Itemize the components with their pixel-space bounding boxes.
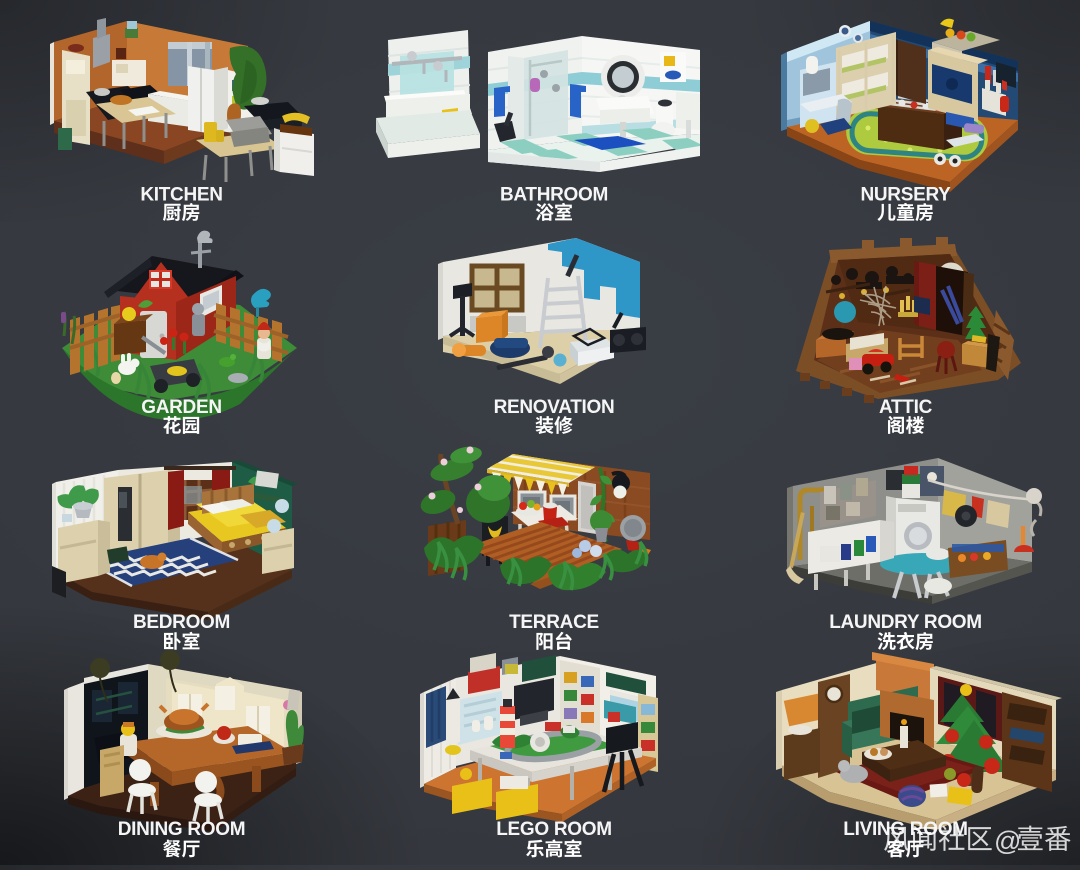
svg-text:DINING ROOM: DINING ROOM [118,819,246,840]
svg-text:GARDEN: GARDEN [141,397,222,418]
svg-text:NURSERY: NURSERY [860,185,951,206]
svg-text:KITCHEN: KITCHEN [140,185,222,206]
svg-text:BEDROOM: BEDROOM [133,612,230,633]
svg-text:TERRACE: TERRACE [509,612,599,633]
svg-text:@: @ [994,826,1021,856]
svg-text:LAUNDRY ROOM: LAUNDRY ROOM [829,612,982,633]
svg-text:RENOVATION: RENOVATION [494,397,615,418]
svg-text:LEGO ROOM: LEGO ROOM [496,819,612,840]
svg-text:ATTIC: ATTIC [879,397,933,418]
svg-text:BATHROOM: BATHROOM [500,185,608,206]
